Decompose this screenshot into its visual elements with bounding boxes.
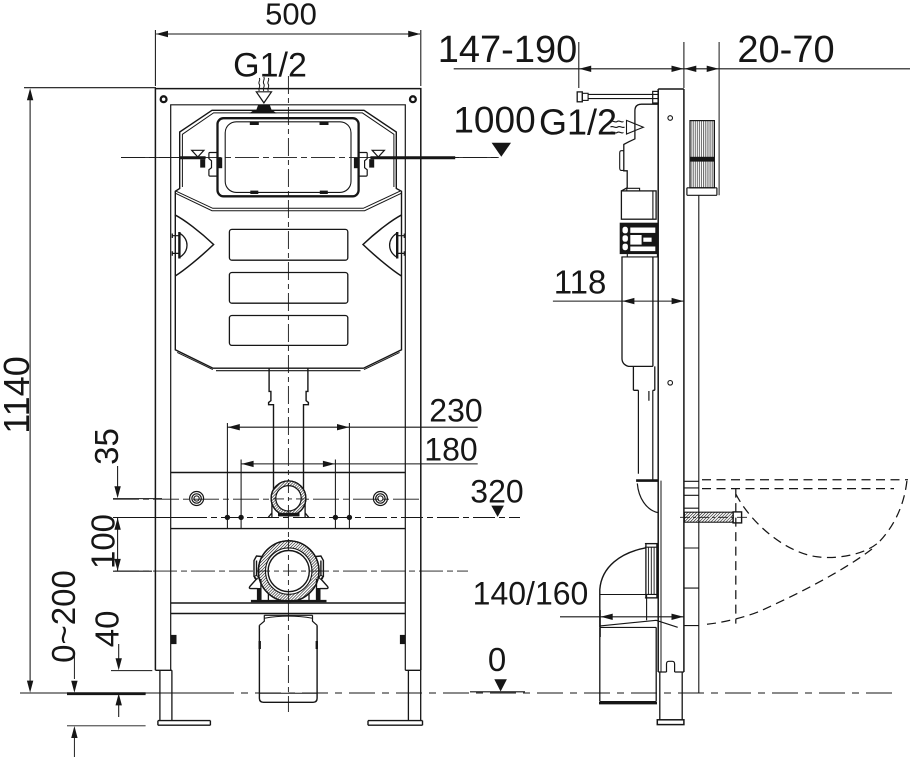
svg-text:180: 180 bbox=[424, 432, 477, 468]
svg-text:35: 35 bbox=[88, 428, 125, 465]
svg-text:1140: 1140 bbox=[0, 356, 37, 433]
svg-text:0: 0 bbox=[488, 641, 506, 678]
svg-text:100: 100 bbox=[85, 514, 122, 569]
svg-text:G1/2: G1/2 bbox=[539, 102, 617, 143]
svg-text:500: 500 bbox=[265, 0, 317, 32]
svg-text:230: 230 bbox=[429, 393, 482, 429]
svg-text:140/160: 140/160 bbox=[473, 576, 589, 612]
svg-text:147-190: 147-190 bbox=[438, 29, 577, 71]
svg-text:40: 40 bbox=[89, 611, 126, 648]
svg-text:G1/2: G1/2 bbox=[233, 47, 307, 85]
svg-text:118: 118 bbox=[554, 264, 607, 301]
svg-text:1000: 1000 bbox=[453, 100, 535, 141]
svg-text:0~200: 0~200 bbox=[45, 570, 82, 663]
svg-text:20-70: 20-70 bbox=[737, 29, 834, 71]
svg-text:320: 320 bbox=[470, 474, 523, 510]
